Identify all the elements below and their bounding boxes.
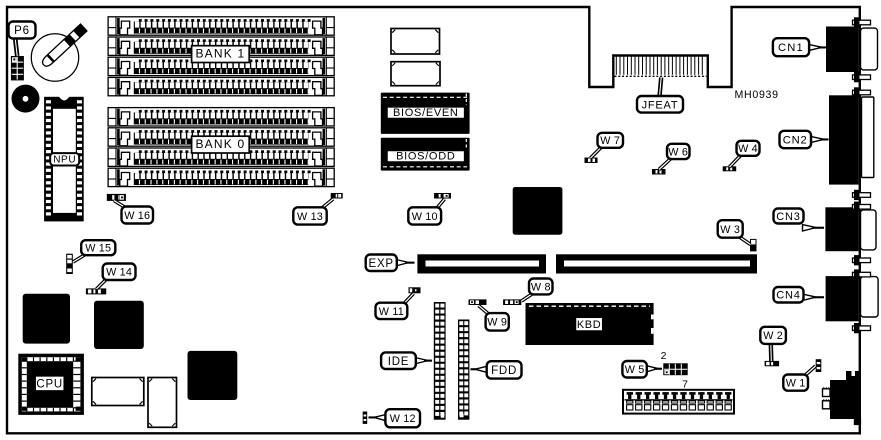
svg-text:IDE: IDE	[388, 356, 410, 368]
svg-text:W 9: W 9	[487, 317, 507, 329]
svg-text:W 14: W 14	[106, 267, 132, 279]
svg-text:P6: P6	[14, 25, 30, 37]
svg-text:BIOS/ODD: BIOS/ODD	[396, 151, 455, 163]
svg-text:FDD: FDD	[491, 365, 517, 377]
svg-text:2: 2	[661, 350, 667, 362]
svg-text:W 8: W 8	[531, 281, 551, 293]
svg-text:CPU: CPU	[36, 378, 63, 390]
svg-text:W 12: W 12	[390, 413, 416, 425]
svg-text:W 1: W 1	[786, 378, 806, 390]
svg-text:CN4: CN4	[776, 290, 800, 302]
svg-text:EXP: EXP	[368, 258, 393, 270]
svg-text:W 10: W 10	[412, 211, 438, 223]
svg-text:W 3: W 3	[720, 224, 740, 236]
svg-text:BANK 1: BANK 1	[195, 47, 245, 61]
svg-text:7: 7	[682, 379, 688, 391]
svg-text:BANK 0: BANK 0	[195, 137, 245, 151]
svg-text:W 11: W 11	[379, 306, 404, 318]
svg-text:W 2: W 2	[763, 330, 783, 342]
svg-text:KBD: KBD	[577, 319, 601, 331]
svg-text:CN1: CN1	[778, 42, 804, 54]
svg-text:CN3: CN3	[776, 211, 800, 223]
svg-text:NPU: NPU	[53, 155, 76, 166]
svg-text:BIOS/EVEN: BIOS/EVEN	[393, 107, 459, 119]
svg-text:W 13: W 13	[297, 211, 323, 223]
svg-text:W 4: W 4	[738, 143, 758, 155]
svg-text:W 7: W 7	[600, 135, 620, 147]
svg-text:W 6: W 6	[668, 146, 688, 158]
svg-text:W 5: W 5	[625, 364, 645, 376]
svg-text:W 16: W 16	[124, 210, 150, 222]
svg-text:CN2: CN2	[783, 135, 808, 147]
svg-text:MH0939: MH0939	[735, 89, 779, 101]
svg-text:JFEAT: JFEAT	[642, 99, 679, 111]
svg-text:W 15: W 15	[85, 243, 111, 255]
